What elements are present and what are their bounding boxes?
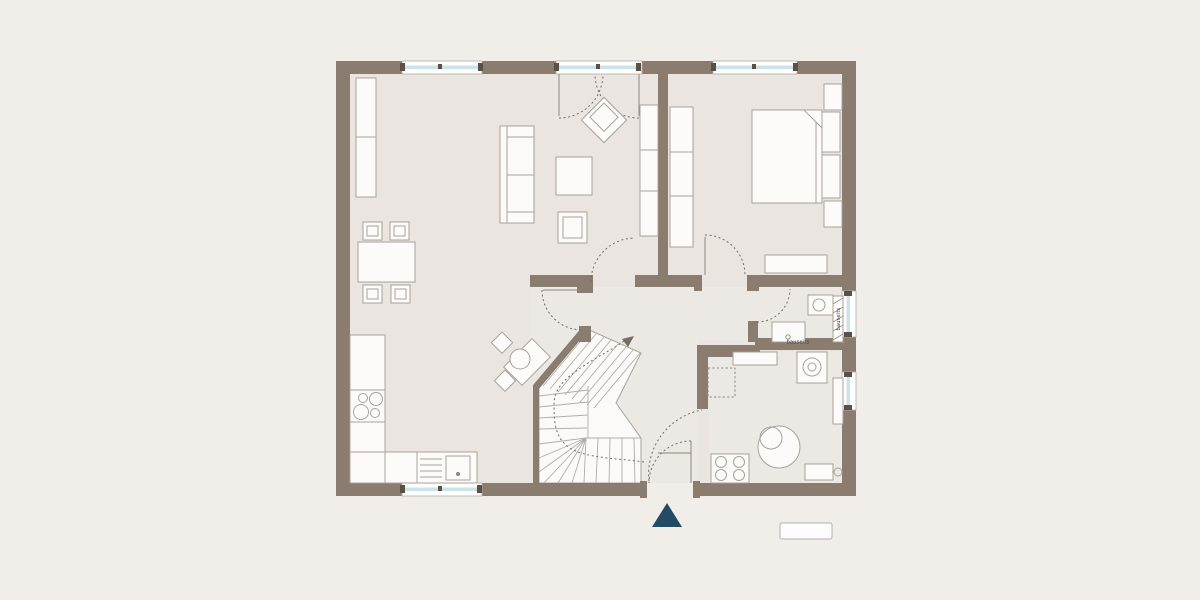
stair-side-wall	[533, 385, 539, 483]
wardrobe	[670, 107, 693, 247]
door-frame-block	[693, 481, 700, 498]
floor-plan-drawing: bauseits bauseits	[0, 0, 1200, 600]
legend-box	[780, 523, 832, 539]
door-frame-block	[747, 275, 759, 291]
bedside-shelf	[822, 112, 840, 152]
dining-table	[358, 242, 415, 282]
utility-cooktop	[711, 454, 749, 483]
nightstand	[824, 201, 842, 227]
desk-chair-seat	[510, 349, 530, 369]
washing-machine	[797, 352, 827, 383]
bedroom-dresser	[765, 255, 827, 273]
wall-hall-bedroom	[635, 275, 702, 287]
wall-bedroom-bath	[747, 275, 842, 287]
sofa	[500, 126, 534, 223]
window-living-top	[400, 61, 483, 74]
window-utility-right	[842, 372, 856, 410]
kitchen-sink	[446, 456, 470, 480]
bath-wall-label: bauseits	[787, 340, 810, 346]
tv-board	[640, 105, 658, 236]
wall-living-bedroom	[658, 74, 668, 287]
window-bathroom-right	[842, 291, 856, 337]
door-frame-block	[694, 275, 702, 291]
utility-sink	[805, 464, 833, 480]
window-kitchen-bottom	[400, 483, 482, 496]
wall-utility-left	[697, 345, 708, 409]
washbasin	[808, 295, 833, 315]
entrance-door-gap	[647, 483, 694, 496]
bed	[752, 110, 822, 203]
entrance-arrow-icon	[652, 503, 682, 527]
side-table	[558, 212, 587, 243]
stair-wall-cap	[579, 326, 591, 342]
window-bedroom-top	[711, 61, 798, 74]
door-frame-block	[640, 481, 647, 498]
nightstand	[824, 84, 842, 110]
shower-strip-label: bauseits	[836, 307, 842, 330]
coffee-table	[556, 157, 592, 195]
boiler-tank	[758, 426, 800, 468]
shower-strip-bauseits: bauseits	[833, 296, 843, 342]
radiator	[833, 378, 843, 424]
utility-shelf	[733, 352, 777, 365]
floor-plan-page: bauseits bauseits	[0, 0, 1200, 600]
bedside-shelf	[822, 155, 840, 198]
